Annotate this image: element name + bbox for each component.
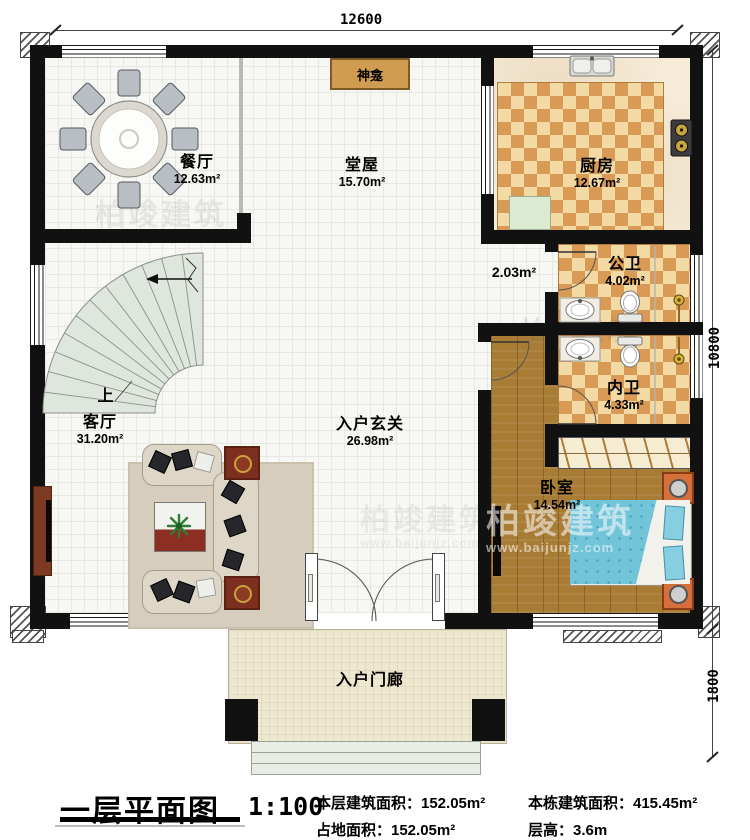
porch-pillar bbox=[225, 699, 258, 741]
kitchen-sliding-door bbox=[481, 86, 494, 194]
entrance-door-leaf bbox=[305, 553, 318, 621]
window bbox=[30, 265, 45, 345]
wall-segment bbox=[545, 335, 558, 385]
sofa-loveseat-top bbox=[142, 444, 222, 486]
nightstand bbox=[662, 472, 694, 504]
watermark-brand: 柏竣建筑 bbox=[360, 505, 492, 537]
partition-dining-hall bbox=[239, 58, 243, 213]
wall-segment bbox=[545, 322, 702, 335]
title-underline bbox=[60, 817, 240, 822]
drawing-title: 一层平面图 bbox=[60, 786, 220, 830]
porch-pillar bbox=[472, 699, 505, 741]
room-label-living: 客厅 31.20m² bbox=[40, 414, 160, 448]
tv-living bbox=[46, 500, 51, 562]
wall-segment bbox=[491, 323, 545, 336]
wall-segment bbox=[30, 229, 251, 243]
sofa-loveseat-bottom bbox=[142, 570, 222, 614]
dimension-height-porch: 1800 bbox=[706, 664, 722, 708]
stat-total-area: 本栋建筑面积：415.45m² bbox=[528, 792, 697, 813]
side-table bbox=[224, 446, 260, 480]
stairs-up-label: 上 bbox=[86, 388, 126, 405]
room-label-foyer: 入户玄关 26.98m² bbox=[310, 416, 430, 450]
title-underline-thin bbox=[55, 825, 245, 827]
wall-hatch bbox=[12, 630, 44, 643]
bed-pillow bbox=[663, 505, 685, 540]
wall-segment bbox=[478, 323, 491, 342]
room-label-porch: 入户门廊 bbox=[310, 672, 430, 689]
room-label-kitchen: 厨房 12.67m² bbox=[537, 158, 657, 192]
window bbox=[533, 613, 658, 629]
dimension-line-right bbox=[712, 50, 713, 758]
drawing-scale: 1:100 bbox=[248, 792, 323, 821]
watermark-url: www.baijunjz.com bbox=[486, 541, 634, 555]
dimension-line-top bbox=[55, 30, 678, 31]
room-label-hall: 堂屋 15.70m² bbox=[302, 157, 422, 191]
stat-land-area: 占地面积：152.05m² bbox=[316, 819, 455, 840]
room-label-bedroom: 卧室 14.54m² bbox=[497, 480, 617, 514]
wall-segment bbox=[481, 58, 494, 86]
stat-floor-area: 本层建筑面积：152.05m² bbox=[316, 792, 485, 813]
porch-steps bbox=[251, 741, 481, 775]
wall-segment bbox=[237, 213, 251, 243]
shrine-label: 神龛 bbox=[357, 65, 383, 84]
wardrobe bbox=[558, 437, 692, 469]
wall-segment bbox=[545, 424, 702, 437]
wall-hatch bbox=[563, 630, 662, 643]
window bbox=[690, 255, 703, 322]
entrance-door-leaf bbox=[432, 553, 445, 621]
window bbox=[533, 45, 659, 58]
stat-floor-height: 层高：3.6m bbox=[528, 819, 607, 840]
watermark-brand: 柏竣建筑 bbox=[95, 200, 227, 232]
side-table bbox=[224, 576, 260, 610]
shrine-cabinet: 神龛 bbox=[330, 58, 410, 90]
wall-segment bbox=[481, 230, 702, 244]
watermark-url: www.baijunjz.com bbox=[360, 537, 492, 550]
room-label-corridor: 2.03m² bbox=[454, 264, 574, 281]
room-label-dining: 餐厅 12.63m² bbox=[137, 154, 257, 188]
floor-plan: 柏竣建筑 www.baijunjz.com 柏竣建筑 www.baijunjz.… bbox=[0, 0, 750, 840]
sofa-long-right bbox=[213, 472, 259, 582]
watermark: 柏竣建筑 www.baijunjz.com bbox=[360, 505, 492, 549]
dimension-width: 12600 bbox=[340, 12, 382, 28]
bed-pillow bbox=[663, 545, 685, 580]
kitchen-cabinet bbox=[509, 196, 551, 230]
window bbox=[62, 45, 166, 58]
dimension-height-main: 10800 bbox=[707, 323, 723, 373]
window bbox=[690, 335, 703, 398]
room-label-public-bath: 公卫 4.02m² bbox=[565, 256, 685, 290]
coffee-table bbox=[154, 502, 206, 552]
room-label-inner-bath: 内卫 4.33m² bbox=[564, 380, 684, 414]
wall-segment bbox=[545, 244, 558, 252]
